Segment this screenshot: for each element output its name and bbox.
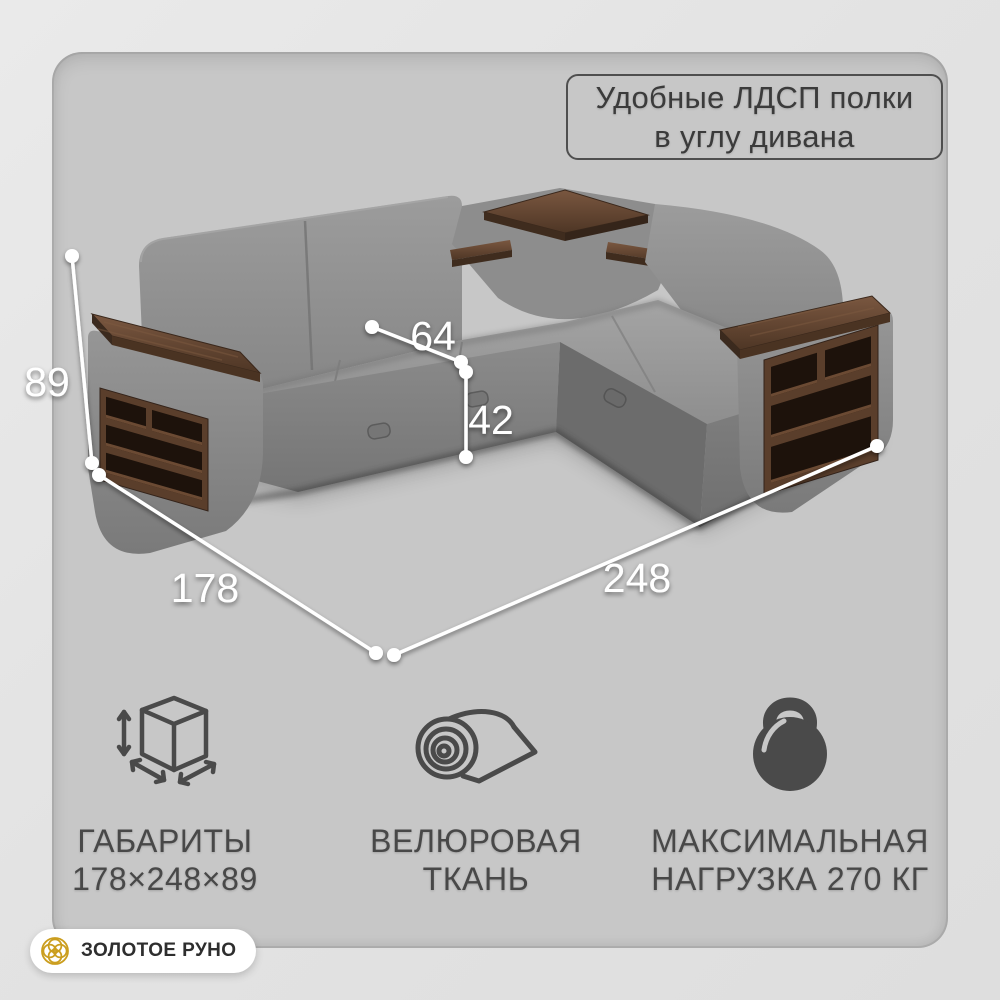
- feature-max-load: МАКСИМАЛЬНАЯ НАГРУЗКА 270 КГ: [625, 688, 955, 898]
- golden-fleece-rings-icon: [38, 934, 72, 968]
- brand-name: ЗОЛОТОЕ РУНО: [81, 940, 236, 962]
- feature-fabric-title: ВЕЛЮРОВАЯ: [370, 822, 582, 860]
- corner-shelves-callout: Удобные ЛДСП полки в углу дивана: [566, 74, 943, 160]
- dimension-height-89: 89: [24, 249, 99, 470]
- feature-dimensions: ГАБАРИТЫ 178×248×89: [25, 688, 305, 898]
- callout-line1: Удобные ЛДСП полки: [596, 78, 914, 117]
- dimension-label-seat-height: 42: [468, 397, 514, 443]
- dimension-label-width: 178: [171, 565, 239, 611]
- dimension-label-height: 89: [24, 359, 70, 405]
- product-card: 89 178 248 64 42: [0, 0, 1000, 1000]
- brand-badge: ЗОЛОТОЕ РУНО: [30, 929, 256, 973]
- dimension-label-seat-depth: 64: [410, 313, 456, 359]
- feature-dimensions-value: 178×248×89: [72, 860, 258, 898]
- feature-max-load-title: МАКСИМАЛЬНАЯ: [651, 822, 929, 860]
- feature-fabric: ВЕЛЮРОВАЯ ТКАНЬ: [326, 688, 626, 898]
- feature-dimensions-title: ГАБАРИТЫ: [72, 822, 258, 860]
- feature-fabric-value: ТКАНЬ: [370, 860, 582, 898]
- cube-dimensions-icon: [102, 688, 228, 796]
- kettlebell-icon: [742, 688, 838, 796]
- dimension-label-length: 248: [603, 555, 671, 601]
- feature-max-load-value: НАГРУЗКА 270 КГ: [651, 860, 929, 898]
- callout-line2: в углу дивана: [654, 117, 854, 156]
- fabric-roll-icon: [409, 688, 543, 796]
- right-armrest: [720, 296, 893, 513]
